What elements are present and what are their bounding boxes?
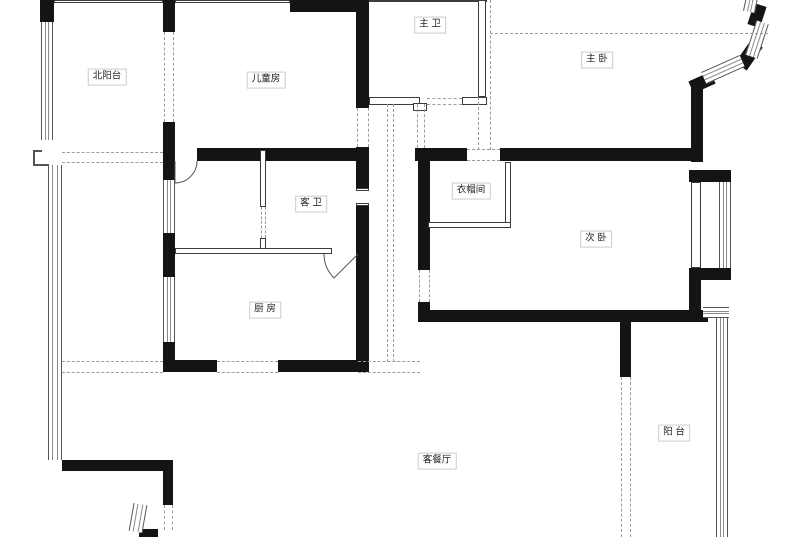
room-label-kitchen: 厨 房 — [249, 302, 281, 319]
room-label-guest-bath: 客 卫 — [295, 196, 327, 213]
room-label-master-bath: 主 卫 — [414, 17, 446, 34]
room-label-cloakroom: 衣帽间 — [452, 183, 491, 200]
room-label-north-balcony: 北阳台 — [88, 69, 127, 86]
door-arc — [175, 161, 197, 183]
door-arc — [324, 254, 334, 278]
room-label-second-bedroom: 次 卧 — [580, 231, 612, 248]
door-leaf — [334, 254, 358, 278]
room-label-living-dining: 客餐厅 — [418, 453, 457, 470]
room-label-master-bedroom: 主 卧 — [581, 52, 613, 69]
room-label-kids-room: 儿童房 — [247, 72, 286, 89]
floor-plan: 北阳台 儿童房 主 卫 主 卧 客 卫 衣帽间 次 卧 厨 房 客餐厅 阳 台 — [0, 0, 795, 537]
room-label-balcony: 阳 台 — [658, 425, 690, 442]
